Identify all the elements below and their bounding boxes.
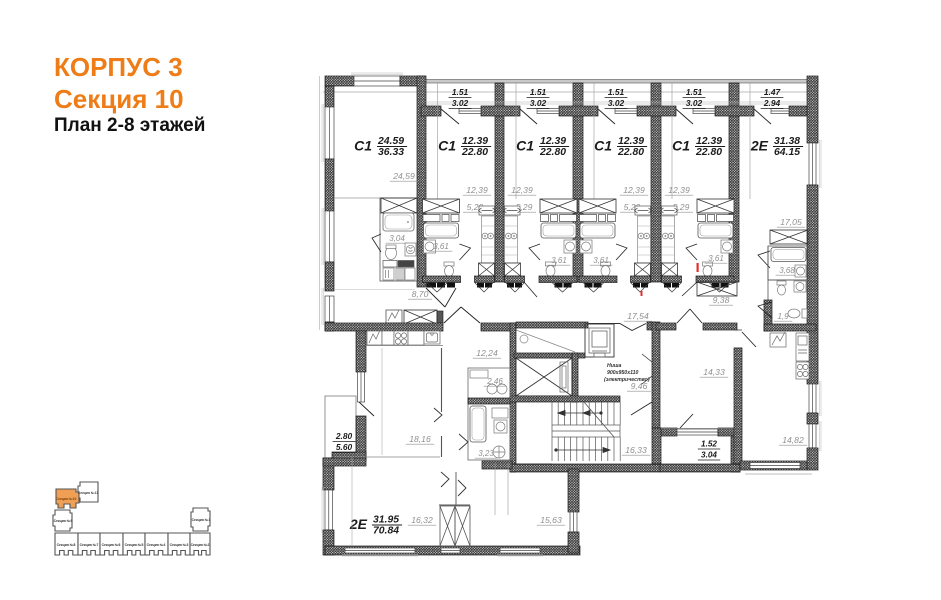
svg-text:С1: С1 <box>594 138 612 154</box>
svg-text:24,59: 24,59 <box>392 171 415 181</box>
svg-text:3.02: 3.02 <box>686 98 703 108</box>
svg-text:9,46: 9,46 <box>631 381 648 391</box>
svg-text:КОРПУС 3: КОРПУС 3 <box>54 52 183 82</box>
svg-text:31.95: 31.95 <box>373 515 399 526</box>
svg-text:22.80: 22.80 <box>695 147 722 158</box>
svg-text:1.52: 1.52 <box>701 440 717 449</box>
svg-text:64.15: 64.15 <box>774 147 800 158</box>
svg-text:1,9: 1,9 <box>777 312 789 321</box>
svg-text:12,39: 12,39 <box>623 185 645 195</box>
svg-text:Секция №2: Секция №2 <box>191 543 210 547</box>
svg-text:3,61: 3,61 <box>433 242 449 251</box>
svg-text:С1: С1 <box>672 138 690 154</box>
svg-text:12.39: 12.39 <box>540 136 566 147</box>
svg-text:Секция №9: Секция №9 <box>54 519 73 523</box>
svg-text:1.51: 1.51 <box>686 87 703 97</box>
svg-text:Секция №7: Секция №7 <box>80 543 99 547</box>
svg-text:1.51: 1.51 <box>452 87 469 97</box>
svg-text:2Е: 2Е <box>349 516 368 532</box>
svg-text:16,32: 16,32 <box>411 515 433 525</box>
svg-text:31.38: 31.38 <box>774 136 800 147</box>
svg-text:С1: С1 <box>516 138 534 154</box>
svg-text:12,39: 12,39 <box>466 185 488 195</box>
svg-text:3,61: 3,61 <box>708 254 724 263</box>
svg-text:3,04: 3,04 <box>389 234 405 243</box>
svg-text:3.04: 3.04 <box>701 451 717 460</box>
svg-text:14,82: 14,82 <box>782 435 804 445</box>
svg-text:1.51: 1.51 <box>530 87 547 97</box>
svg-text:17,54: 17,54 <box>627 311 649 321</box>
svg-text:3,23: 3,23 <box>478 449 494 458</box>
svg-text:3.02: 3.02 <box>530 98 547 108</box>
svg-text:12.39: 12.39 <box>618 136 644 147</box>
svg-text:Ниша: Ниша <box>607 363 622 369</box>
svg-text:12.39: 12.39 <box>696 136 722 147</box>
svg-text:1.47: 1.47 <box>764 87 781 97</box>
svg-text:2.80: 2.80 <box>335 431 353 441</box>
svg-text:Секция №8: Секция №8 <box>57 543 76 547</box>
svg-text:17,05: 17,05 <box>780 217 802 227</box>
svg-text:70.84: 70.84 <box>373 526 399 537</box>
svg-text:Секция №5: Секция №5 <box>125 543 144 547</box>
svg-text:22.80: 22.80 <box>539 147 566 158</box>
svg-text:9,38: 9,38 <box>713 295 730 305</box>
svg-text:С1: С1 <box>354 138 372 154</box>
svg-text:14,33: 14,33 <box>703 367 725 377</box>
svg-text:1.51: 1.51 <box>608 87 625 97</box>
svg-text:2Е: 2Е <box>750 138 769 154</box>
svg-text:3.02: 3.02 <box>452 98 469 108</box>
svg-text:3,61: 3,61 <box>551 256 567 265</box>
svg-text:22.80: 22.80 <box>617 147 644 158</box>
svg-text:Секция №4: Секция №4 <box>147 543 166 547</box>
svg-text:12,24: 12,24 <box>476 348 498 358</box>
svg-text:2.94: 2.94 <box>763 98 781 108</box>
svg-text:22.80: 22.80 <box>461 147 488 158</box>
svg-text:3,68: 3,68 <box>779 266 795 275</box>
svg-text:План 2-8 этажей: План 2-8 этажей <box>54 115 205 136</box>
svg-text:Секция №6: Секция №6 <box>102 543 121 547</box>
svg-text:Секция №10: Секция №10 <box>56 497 77 501</box>
svg-text:12.39: 12.39 <box>462 136 488 147</box>
svg-text:5.60: 5.60 <box>336 442 353 452</box>
svg-text:24.59: 24.59 <box>377 136 404 147</box>
svg-text:2,46: 2,46 <box>486 377 503 386</box>
svg-text:С1: С1 <box>438 138 456 154</box>
svg-text:12,39: 12,39 <box>511 185 533 195</box>
svg-text:15,63: 15,63 <box>540 515 562 525</box>
svg-text:18,16: 18,16 <box>409 434 431 444</box>
svg-text:12,39: 12,39 <box>668 185 690 195</box>
svg-text:3.02: 3.02 <box>608 98 625 108</box>
svg-text:900х950х110: 900х950х110 <box>607 370 638 376</box>
svg-text:16,33: 16,33 <box>625 445 647 455</box>
svg-text:Секция №1: Секция №1 <box>192 518 211 522</box>
svg-text:Секция 10: Секция 10 <box>54 84 184 114</box>
svg-text:3,61: 3,61 <box>593 256 609 265</box>
svg-text:36.33: 36.33 <box>378 147 404 158</box>
svg-text:8,70: 8,70 <box>412 289 429 299</box>
svg-text:Секция №3: Секция №3 <box>170 543 189 547</box>
svg-text:Секция №11: Секция №11 <box>78 491 99 495</box>
